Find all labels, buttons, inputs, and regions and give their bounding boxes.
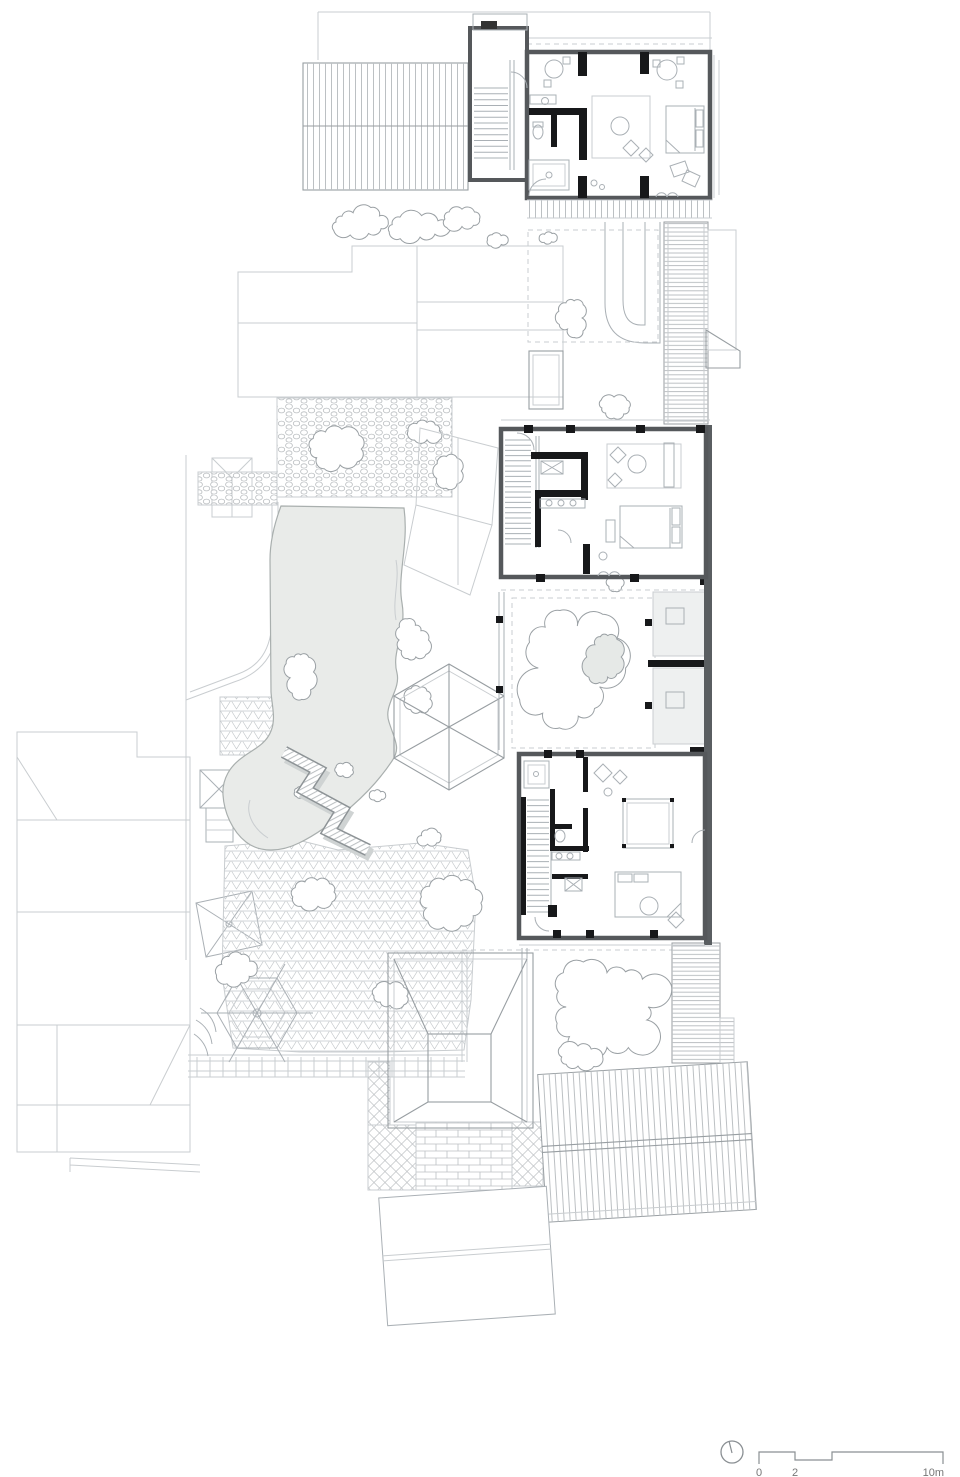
- drawing-annotations: 0 2 10m: [721, 1441, 944, 1477]
- rockery-contour: [599, 395, 630, 419]
- middle-courtyard: [496, 568, 712, 764]
- rockery-contour: [309, 426, 364, 472]
- north-needle-icon: [729, 1441, 732, 1453]
- rockery-contour: [332, 205, 388, 240]
- striped-roof-southeast: [538, 1062, 757, 1223]
- upper-guest-building: [470, 14, 719, 218]
- middle-guest-building: [501, 420, 710, 590]
- plain-roof-southwest: [379, 1186, 556, 1325]
- floor-plan-drawing: 0 2 10m: [0, 0, 960, 1477]
- floor-plan-page: 0 2 10m: [0, 0, 960, 1477]
- scale-label-10m: 10m: [923, 1467, 944, 1477]
- west-roof-eave: [186, 502, 278, 700]
- rockery-contour: [443, 207, 480, 232]
- scale-bar: 0 2 10m: [756, 1452, 944, 1477]
- north-indicator: [721, 1441, 743, 1463]
- stone-fan-steps: [194, 1008, 216, 1056]
- entry-step: [481, 21, 497, 29]
- corridor-roof-south: [672, 943, 734, 1063]
- rockery-contour: [388, 210, 450, 243]
- scale-label-0: 0: [756, 1467, 762, 1477]
- curved-garden-path: [605, 222, 660, 343]
- rockery-contour: [555, 299, 586, 338]
- rockery-contour: [539, 232, 557, 244]
- rockery-contour: [396, 619, 432, 661]
- staircase: [505, 440, 531, 544]
- lattice-screen: [529, 351, 563, 409]
- rockery-middle-courtyard: [517, 610, 630, 729]
- rockery-contour: [417, 828, 441, 846]
- south-garden-wall: [188, 1055, 465, 1077]
- scale-label-2: 2: [792, 1467, 798, 1477]
- rockery-north: [332, 205, 557, 248]
- rockery-contour: [291, 878, 336, 911]
- hexagonal-pavilion-roof: [394, 664, 504, 790]
- lower-guest-building: [519, 750, 705, 945]
- veranda-deck: [527, 200, 712, 218]
- staircase: [527, 800, 549, 912]
- northwest-roofs: [238, 246, 563, 397]
- striped-roof-northwest: [303, 63, 468, 190]
- rockery-contour: [369, 790, 385, 802]
- rockery-contour: [335, 762, 354, 777]
